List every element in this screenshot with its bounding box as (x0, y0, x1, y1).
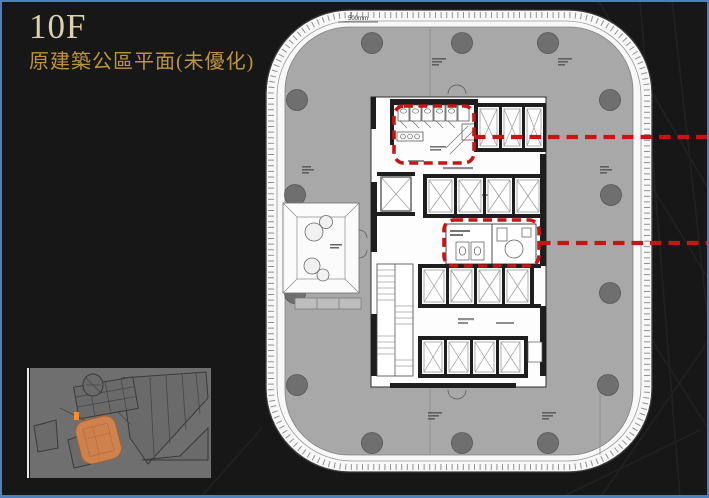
elevator-bank-a (474, 103, 546, 152)
elevator-bank-d (418, 264, 541, 308)
page-title: 10F (29, 8, 254, 47)
column (538, 33, 559, 54)
column (287, 375, 308, 396)
title-block: 10F 原建築公區平面(未優化) (29, 8, 254, 75)
core (371, 97, 546, 388)
terrace-garden (283, 203, 361, 309)
column (362, 33, 383, 54)
column (452, 33, 473, 54)
page-subtitle: 原建築公區平面(未優化) (29, 49, 254, 75)
thumbnail-marker-icon (74, 412, 79, 420)
column (601, 185, 622, 206)
site-buildings (34, 372, 208, 468)
column (600, 90, 621, 111)
restroom-zone-central (446, 224, 536, 264)
stairs (377, 264, 413, 376)
floor-plan: 500mm (260, 6, 658, 483)
thumbnail-divider-line (27, 368, 29, 478)
column (600, 283, 621, 304)
site-thumbnail (30, 368, 211, 478)
column (287, 90, 308, 111)
column (285, 185, 306, 206)
column (598, 375, 619, 396)
column (538, 433, 559, 454)
column (452, 433, 473, 454)
column (362, 433, 383, 454)
slide: { "slide": { "title": "10F", "subtitle":… (0, 0, 709, 498)
svg-text:500mm: 500mm (348, 16, 368, 22)
